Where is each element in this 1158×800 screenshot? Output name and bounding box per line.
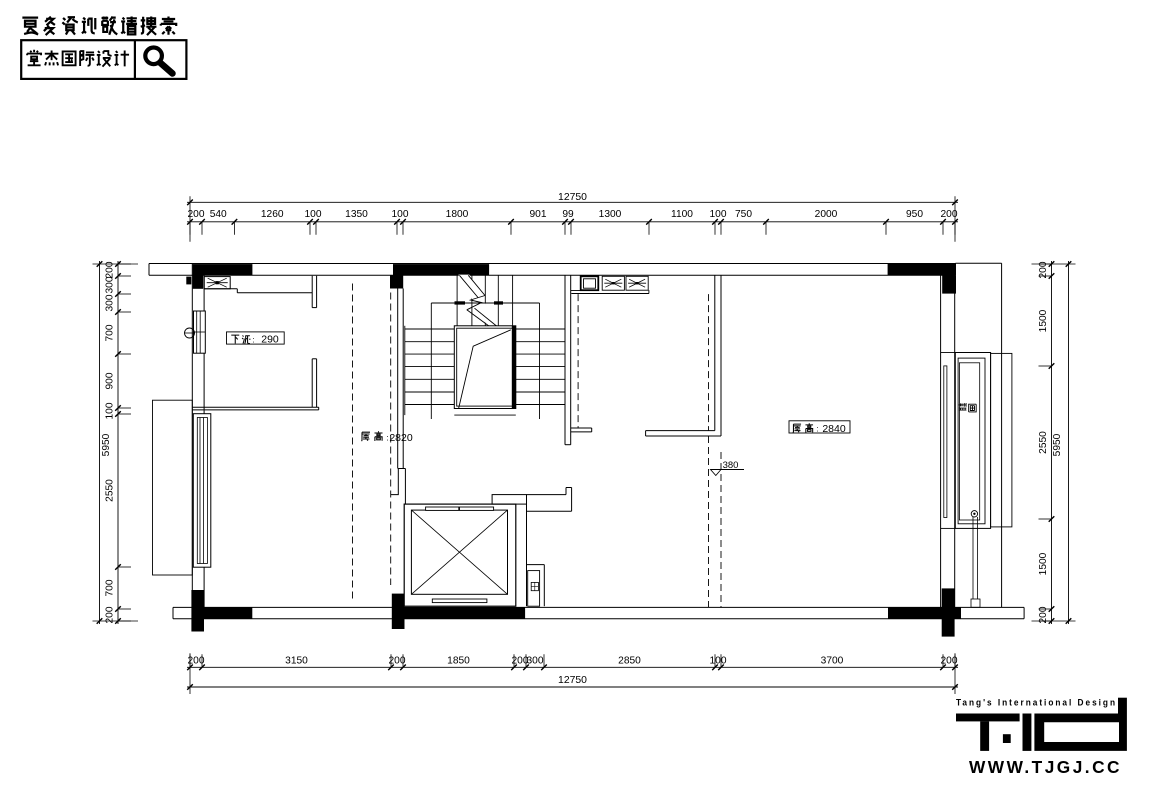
svg-text:1500: 1500 bbox=[1038, 552, 1049, 575]
svg-text:5950: 5950 bbox=[101, 433, 112, 456]
svg-text:Tang's International Design: Tang's International Design bbox=[956, 698, 1117, 708]
svg-text:300: 300 bbox=[105, 294, 116, 311]
svg-text:540: 540 bbox=[210, 209, 227, 220]
svg-text:700: 700 bbox=[105, 324, 116, 341]
svg-text:700: 700 bbox=[105, 579, 116, 596]
svg-text:300: 300 bbox=[105, 276, 116, 293]
svg-text:1300: 1300 bbox=[599, 209, 622, 220]
svg-text:750: 750 bbox=[735, 209, 752, 220]
svg-text:1260: 1260 bbox=[261, 209, 284, 220]
svg-text:100: 100 bbox=[710, 209, 727, 220]
svg-text:1500: 1500 bbox=[1038, 309, 1049, 332]
svg-text:901: 901 bbox=[530, 209, 547, 220]
svg-text:1800: 1800 bbox=[446, 209, 469, 220]
svg-text:12750: 12750 bbox=[558, 192, 587, 203]
svg-text::: : bbox=[816, 424, 818, 433]
svg-text:100: 100 bbox=[710, 656, 727, 667]
svg-text:12750: 12750 bbox=[558, 675, 587, 686]
svg-text::: : bbox=[252, 335, 254, 344]
svg-text:100: 100 bbox=[392, 209, 409, 220]
svg-text:900: 900 bbox=[105, 372, 116, 389]
svg-text:2820: 2820 bbox=[389, 432, 413, 444]
svg-text:2840: 2840 bbox=[822, 423, 846, 435]
svg-text:5950: 5950 bbox=[1052, 433, 1063, 456]
svg-text:1350: 1350 bbox=[345, 209, 368, 220]
svg-text:2000: 2000 bbox=[815, 209, 838, 220]
svg-text:99: 99 bbox=[562, 209, 574, 220]
svg-text:3700: 3700 bbox=[821, 656, 844, 667]
svg-text:100: 100 bbox=[105, 402, 116, 419]
svg-text:300: 300 bbox=[527, 656, 544, 667]
svg-text:2550: 2550 bbox=[105, 479, 116, 502]
svg-text:290: 290 bbox=[261, 334, 279, 346]
svg-text:1850: 1850 bbox=[447, 656, 470, 667]
svg-text:2550: 2550 bbox=[1038, 431, 1049, 454]
svg-text:950: 950 bbox=[906, 209, 923, 220]
svg-text:100: 100 bbox=[305, 209, 322, 220]
svg-text:1100: 1100 bbox=[671, 209, 693, 220]
svg-text:3150: 3150 bbox=[285, 656, 308, 667]
svg-text:2850: 2850 bbox=[618, 656, 641, 667]
svg-text:200: 200 bbox=[389, 656, 406, 667]
svg-text:WWW.TJGJ.CC: WWW.TJGJ.CC bbox=[969, 757, 1122, 777]
